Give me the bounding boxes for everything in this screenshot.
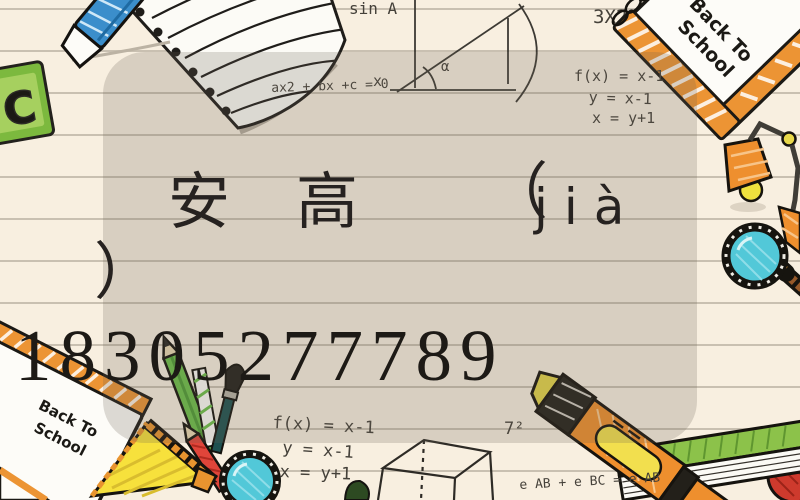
- title-pinyin: jià: [534, 180, 640, 235]
- text-layer: 安 高 （ jià ） 18305277789: [0, 0, 800, 500]
- title-char-an: 安: [168, 168, 230, 236]
- title-paren-close: ）: [94, 238, 156, 306]
- phone-number: 18305277789: [15, 314, 505, 398]
- back-to-school-ad-banner: C 3X2+ Back To School: [0, 0, 800, 500]
- title-char-gao: 高: [296, 168, 358, 236]
